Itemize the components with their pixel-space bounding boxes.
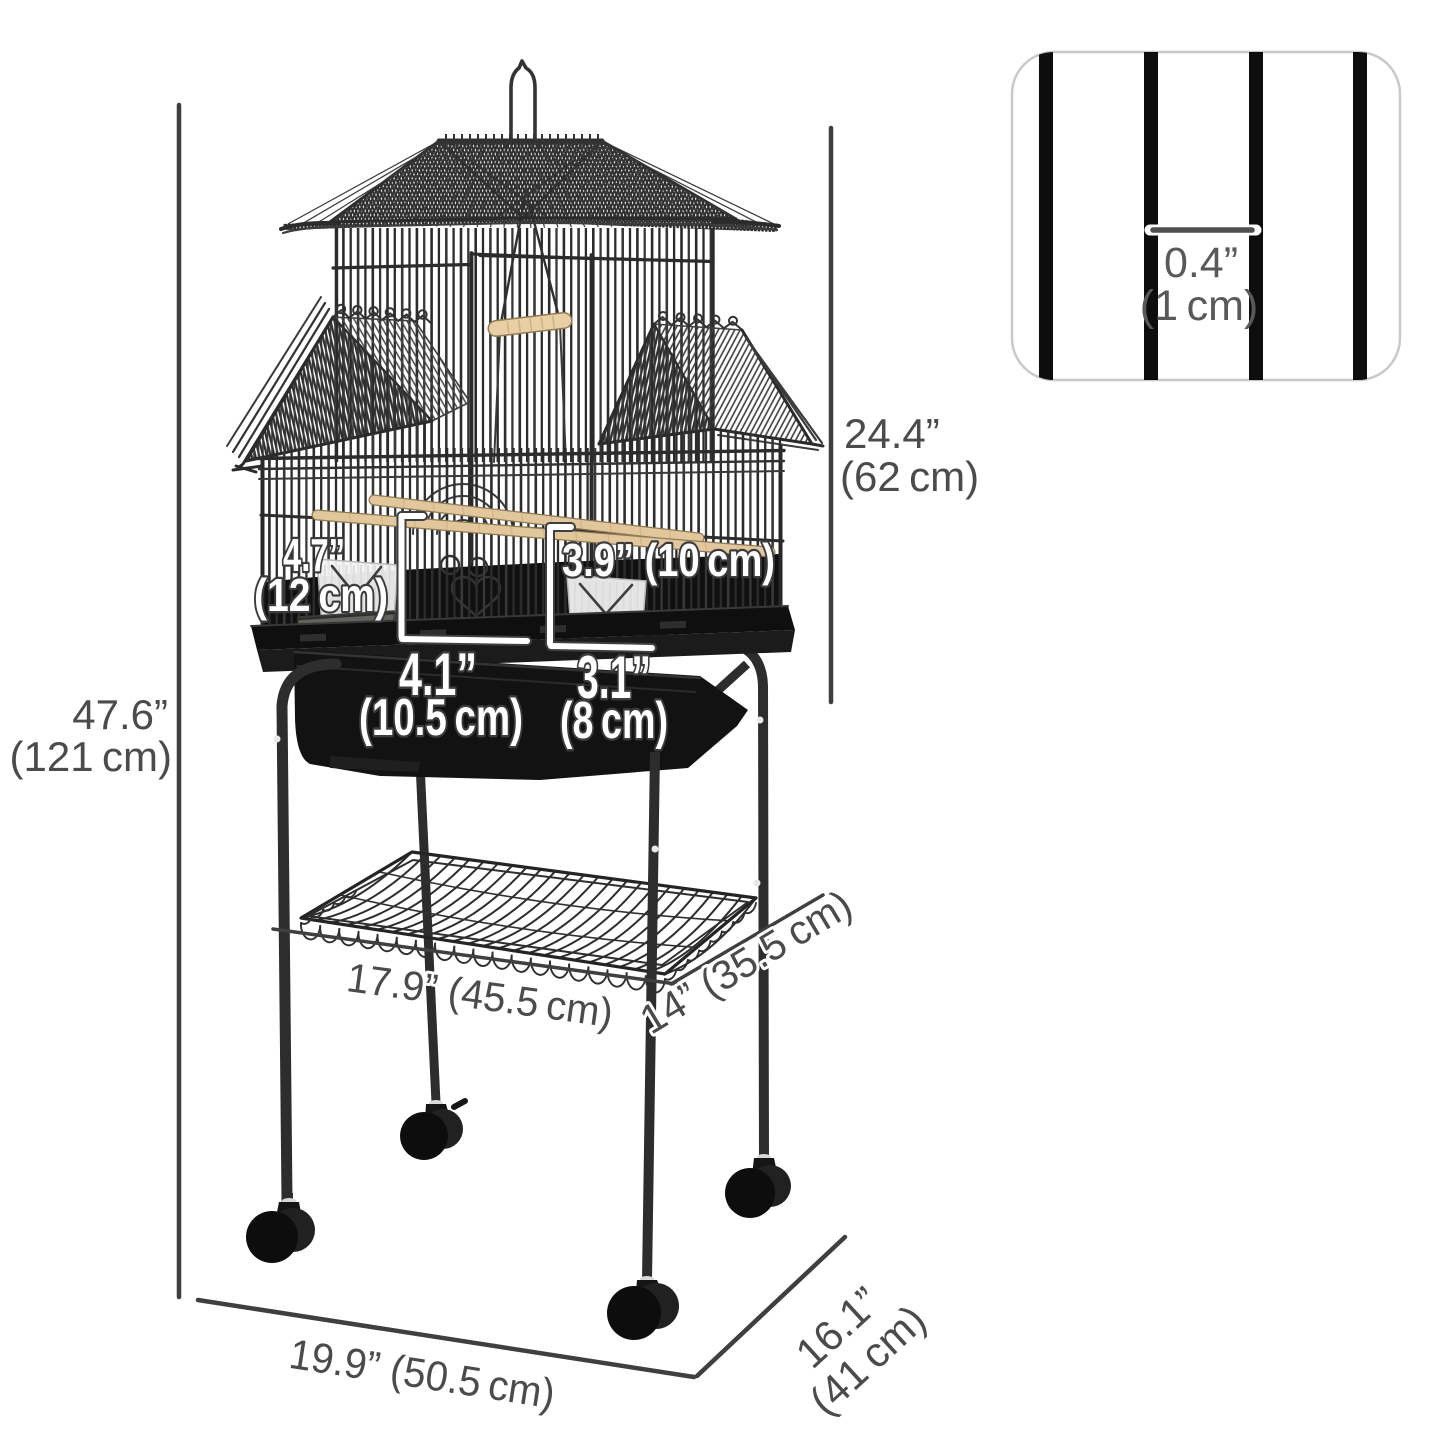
svg-text:47.6”: 47.6”	[72, 691, 168, 738]
svg-text:(8 cm): (8 cm)	[560, 692, 668, 750]
svg-text:(1 cm): (1 cm)	[1140, 282, 1258, 330]
svg-text:(121 cm): (121 cm)	[10, 733, 172, 780]
svg-text:(10.5 cm): (10.5 cm)	[359, 689, 523, 747]
svg-text:24.4”: 24.4”	[844, 410, 940, 457]
svg-text:(62 cm): (62 cm)	[840, 453, 979, 500]
svg-text:3.9” (10 cm): 3.9” (10 cm)	[562, 534, 775, 586]
svg-text:(12 cm): (12 cm)	[254, 569, 388, 621]
svg-text:0.4”: 0.4”	[1164, 239, 1238, 287]
